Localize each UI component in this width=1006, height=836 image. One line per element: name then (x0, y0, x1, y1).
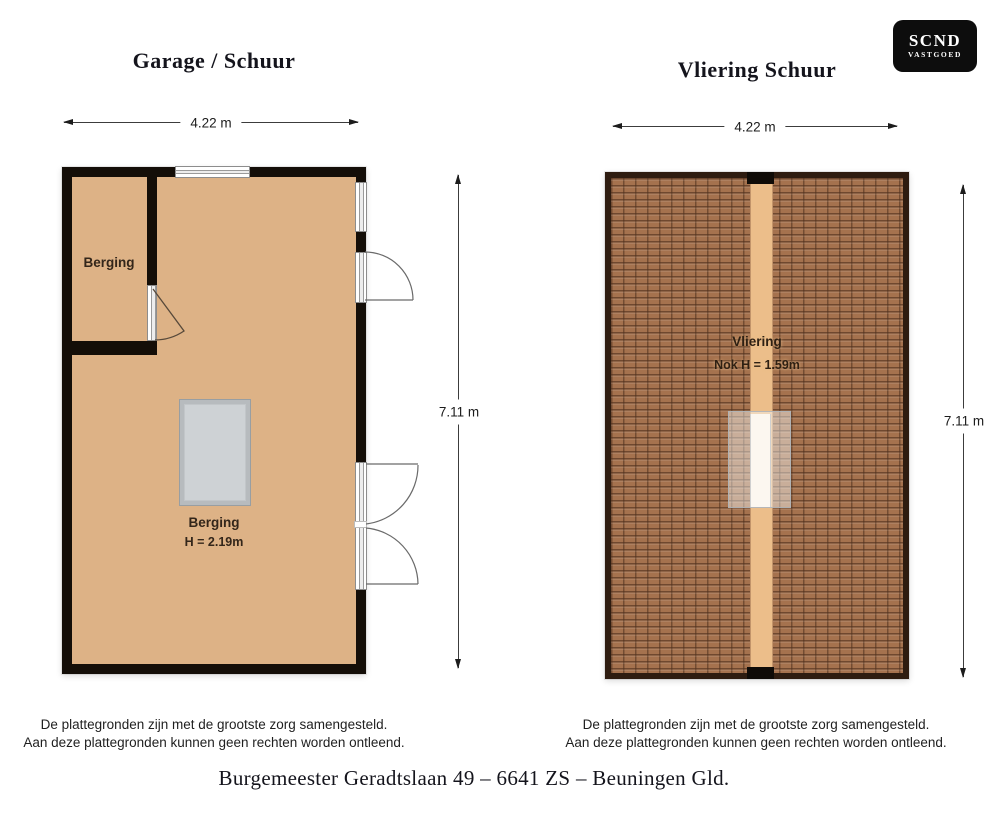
roof-hatch-core (750, 414, 771, 507)
ridge-wall-stub-bottom (747, 667, 774, 679)
left-disclaimer: De plattegronden zijn met de grootste zo… (4, 716, 424, 752)
top-wall-window (175, 166, 250, 178)
floor-hatch (180, 400, 250, 505)
right-plan-height-label: 7.11 m (941, 409, 987, 434)
logo-primary-text: SCND (909, 32, 961, 50)
logo-secondary-text: VASTGOED (908, 50, 962, 60)
ridge-wall-stub-top (747, 172, 774, 184)
left-plan-width-dimension: 4.22 m (64, 122, 358, 123)
right-plan-width-dimension: 4.22 m (613, 126, 897, 127)
arrow-up-icon (455, 174, 461, 184)
left-plan-height-dimension: 7.11 m (458, 175, 459, 668)
garage-room-height: H = 2.19m (72, 535, 356, 549)
right-plan-width-label: 4.22 m (724, 120, 785, 135)
garage-floorplan: Berging Berging H = 2.19m (62, 167, 366, 674)
left-plan-title: Garage / Schuur (62, 48, 366, 74)
arrow-down-icon (455, 659, 461, 669)
garage-room-label: Berging (72, 515, 356, 530)
right-plan-height-dimension: 7.11 m (963, 185, 964, 677)
vliering-room-label: Vliering (611, 334, 903, 349)
berging-room-label: Berging (64, 255, 154, 270)
left-plan-width-label: 4.22 m (180, 116, 241, 131)
berging-door-opening (147, 285, 157, 341)
right-wall-door-opening (355, 252, 367, 303)
arrow-down-icon (960, 668, 966, 678)
arrow-left-icon (63, 119, 73, 125)
right-wall-window (355, 182, 367, 232)
berging-bottom-wall (72, 341, 157, 355)
roof-hatch (728, 411, 791, 508)
property-address: Burgemeester Geradtslaan 49 – 6641 ZS – … (0, 766, 948, 791)
left-disclaimer-line2: Aan deze plattegronden kunnen geen recht… (4, 734, 424, 752)
right-plan-title: Vliering Schuur (605, 57, 909, 83)
arrow-right-icon (888, 123, 898, 129)
vliering-roofplan: Vliering Nok H = 1.59m (605, 172, 909, 679)
floorplan-page: Garage / Schuur Vliering Schuur SCND VAS… (0, 0, 1006, 836)
left-disclaimer-line1: De plattegronden zijn met de grootste zo… (4, 716, 424, 734)
right-disclaimer-line1: De plattegronden zijn met de grootste zo… (546, 716, 966, 734)
arrow-right-icon (349, 119, 359, 125)
arrow-up-icon (960, 184, 966, 194)
scnd-vastgoed-logo: SCND VASTGOED (893, 20, 977, 72)
right-disclaimer: De plattegronden zijn met de grootste zo… (546, 716, 966, 752)
vliering-room-height: Nok H = 1.59m (611, 358, 903, 372)
left-plan-height-label: 7.11 m (436, 399, 482, 424)
arrow-left-icon (612, 123, 622, 129)
right-disclaimer-line2: Aan deze plattegronden kunnen geen recht… (546, 734, 966, 752)
